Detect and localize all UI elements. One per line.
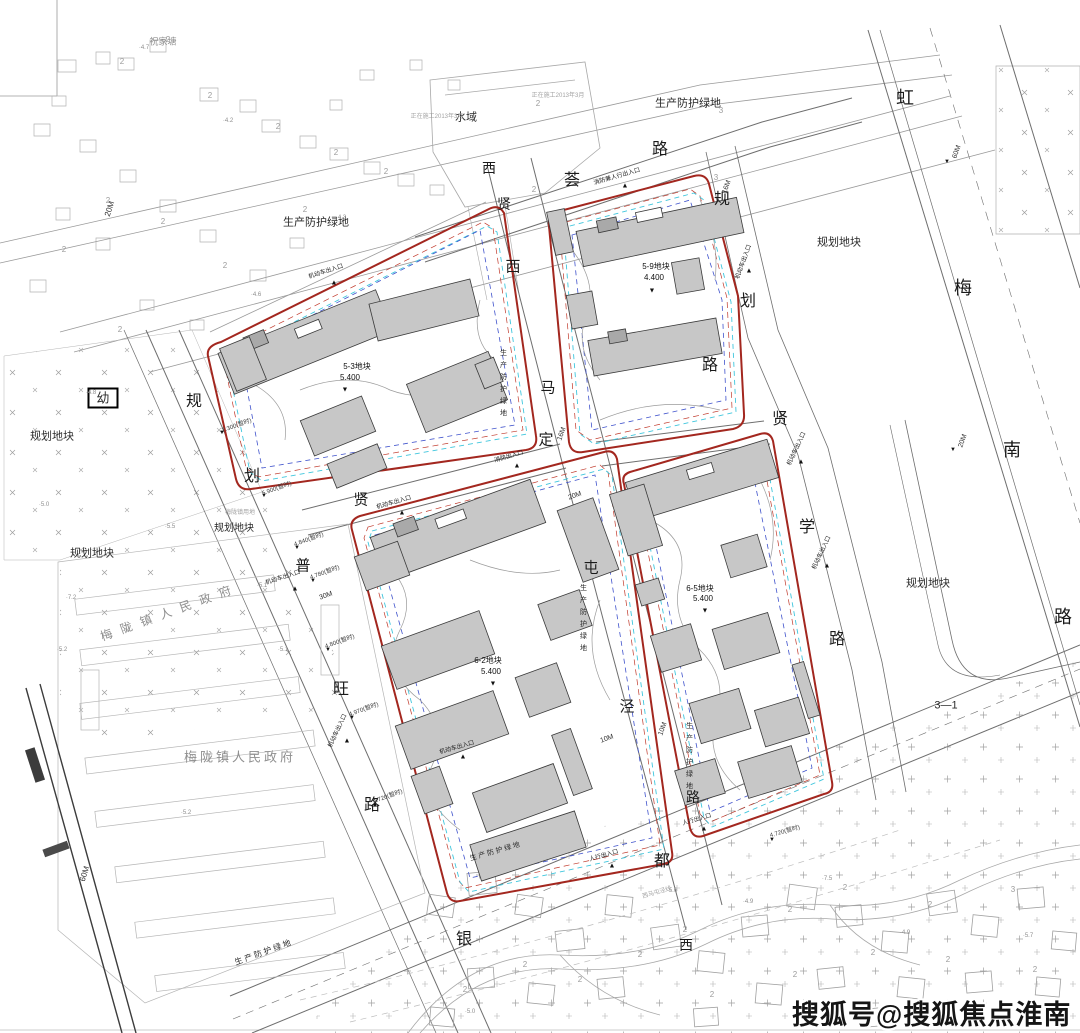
road-label: 规 — [186, 394, 202, 410]
marker-label: ▲ — [399, 510, 406, 517]
context_number-label: 2 — [223, 262, 227, 270]
road-label: 贤 — [353, 493, 368, 508]
hatched-plots — [4, 66, 1080, 744]
road-label: 划 — [740, 294, 756, 310]
elevation-label: ·5.7 — [1023, 933, 1033, 939]
context_number-label: 2 — [62, 246, 66, 254]
parcel-label: 6-2地块 — [474, 657, 502, 665]
road-label: 划 — [244, 469, 260, 485]
area-label: 规划地块 — [817, 238, 861, 249]
parcel-label: ▼ — [649, 288, 656, 295]
marker-label: ▼ — [349, 715, 355, 721]
elevation-label: ·5.1 — [278, 647, 288, 653]
marker-label: ▲ — [331, 280, 338, 287]
context_number-label: 2 — [710, 991, 714, 999]
area-label: 规划地块 — [906, 579, 950, 590]
area-label: 生产防护绿地 — [686, 722, 693, 794]
road-label: 旺 — [333, 682, 349, 698]
elevation-label: ·5.0 — [39, 502, 49, 508]
elevation-label: ·4.2 — [223, 118, 233, 124]
elevation-label: ·5.2 — [181, 810, 191, 816]
context_number-label: 2 — [161, 218, 165, 226]
elevation-label: ·4.7 — [139, 45, 149, 51]
marker-label: ▲ — [514, 463, 521, 470]
marker-label: ▲ — [798, 459, 805, 466]
parcel-label: ▼ — [342, 387, 349, 394]
context_number-label: 2 — [536, 100, 540, 108]
elevation-label: ·5.1 — [257, 583, 267, 589]
marker-label: ▲ — [622, 183, 629, 190]
elevation-label: ·4.9 — [743, 899, 753, 905]
elevation-label: ·7.2 — [66, 595, 76, 601]
context_number-label: 2 — [106, 197, 110, 205]
context_number-label: 2 — [532, 186, 536, 194]
road-label: 路 — [702, 358, 718, 374]
parcel-label: 5.400 — [693, 595, 713, 603]
area-label: 3—1 — [934, 701, 957, 712]
road-label: 贤 — [497, 197, 511, 211]
parcel-label: ▼ — [490, 681, 497, 688]
note-label: 正在施工2013年3月 — [411, 114, 464, 120]
marker-label: ▼ — [325, 647, 331, 653]
road-label: 荟 — [564, 173, 580, 189]
site-plan-drawing: 虹梅南路规划路贤学路西贤荟路西马定屯泾规划贤普旺路银都路西祝家塘水域生产防护绿地… — [0, 0, 1080, 1033]
context_number-label: 2 — [946, 956, 950, 964]
context_number-label: 2 — [843, 884, 847, 892]
road-label: 都 — [654, 854, 670, 870]
context_number-label: 2 — [578, 976, 582, 984]
area-label: 生产防护绿地 — [500, 349, 507, 421]
marker-label: ▼ — [944, 159, 950, 165]
context_number-label: 2 — [208, 92, 212, 100]
road-label: 路 — [1054, 608, 1072, 626]
road-label: 南 — [1003, 441, 1021, 459]
road-label: 路 — [829, 632, 845, 648]
marker-label: ▲ — [609, 863, 616, 870]
marker-label: ▼ — [294, 545, 300, 551]
marker-label: ▲ — [292, 586, 299, 593]
marker-label: ▼ — [769, 837, 775, 843]
area-label: 生产防护绿地 — [655, 99, 721, 110]
context_number-label: 2 — [384, 168, 388, 176]
marker-label: ▼ — [261, 493, 267, 499]
context_number-label: 2 — [303, 206, 307, 214]
marker-label: ▲ — [701, 826, 708, 833]
elevation-label: ·4.3 — [336, 215, 346, 221]
context_number-label: 3 — [1011, 886, 1015, 894]
context_number-label: 2 — [463, 986, 467, 994]
road-label: 梅 — [954, 279, 972, 297]
road-label: 定 — [538, 433, 553, 448]
road-label: 马 — [540, 381, 555, 396]
context_number-label: 2 — [928, 901, 932, 909]
building — [369, 279, 479, 341]
marker-label: ▲ — [460, 754, 467, 761]
marker-label: ▼ — [310, 578, 316, 584]
road-label: 屯 — [583, 561, 598, 576]
watermark: 搜狐号@搜狐焦点淮南站 — [792, 993, 1080, 1033]
road-label: 西 — [679, 938, 693, 952]
area-label: 生产防护绿地 — [580, 584, 587, 656]
parcel-label: ▼ — [702, 608, 709, 615]
context_number-label: 2 — [871, 949, 875, 957]
elevation-label: ·5.5 — [165, 524, 175, 530]
marker-label: ▼ — [950, 447, 956, 453]
marker-label: ▲ — [824, 563, 831, 570]
road-label: 路 — [652, 142, 668, 158]
context_number-label: 3 — [714, 174, 718, 182]
context_number-label: 2 — [120, 58, 124, 66]
road-label: 虹 — [896, 89, 914, 107]
area-label: 梅陇镇人民政府 — [184, 751, 296, 764]
context_number-label: 2 — [793, 971, 797, 979]
parcel-label: 5.400 — [481, 668, 501, 676]
context_number-label: 2 — [1033, 966, 1037, 974]
elevation-label: ·4.6 — [251, 292, 261, 298]
parcel-label: 5-3地块 — [343, 363, 371, 371]
elevation-label: ·7.5 — [822, 876, 832, 882]
parcel-label: 6-5地块 — [686, 585, 714, 593]
marker-label: ▲ — [344, 738, 351, 745]
elevation-label: ·4.8 — [86, 390, 96, 396]
road-label: 学 — [799, 520, 815, 536]
marker-label: ▼ — [372, 803, 378, 809]
area-label: 规划地块 — [214, 524, 254, 534]
context_number-label: 2 — [523, 961, 527, 969]
context_number-label: 2 — [638, 951, 642, 959]
context_number-label: 3 — [719, 107, 723, 115]
context_number-label: 2 — [788, 906, 792, 914]
context_number-label: 2 — [276, 123, 280, 131]
road-label: 泾 — [619, 700, 634, 715]
elevation-label: ·5.0 — [465, 1009, 475, 1015]
context-village-houses — [30, 40, 460, 330]
parcel-label: 4.400 — [644, 274, 664, 282]
elevation-label: ·4.9 — [900, 930, 910, 936]
road-label: 西 — [482, 161, 496, 175]
context_number-label: 2 — [334, 149, 338, 157]
marker-label: ▲ — [746, 268, 753, 275]
elevation-label: ·5.2 — [57, 647, 67, 653]
area-label: 规划地块 — [70, 549, 114, 560]
context_number-label: 2 — [683, 926, 687, 934]
area-label: 祝家塘 — [149, 38, 176, 47]
building — [381, 611, 494, 690]
villa-neighborhood — [300, 660, 1080, 1033]
road-label: 西 — [505, 260, 520, 275]
context_number-label: 2 — [118, 326, 122, 334]
marker-label: ▼ — [219, 430, 225, 436]
note-label: 梅陇镇用地 — [225, 510, 255, 516]
building — [395, 691, 508, 770]
context-roads-top — [0, 55, 995, 372]
parcel-label: 5-9地块 — [642, 263, 670, 271]
area-label: 规划地块 — [30, 432, 74, 443]
context_number-label: 2 — [166, 36, 170, 44]
road-label: 贤 — [772, 412, 788, 428]
parcel-label: 5.400 — [340, 374, 360, 382]
road-label: 银 — [456, 932, 472, 948]
site-plan-linework — [0, 0, 1080, 1033]
